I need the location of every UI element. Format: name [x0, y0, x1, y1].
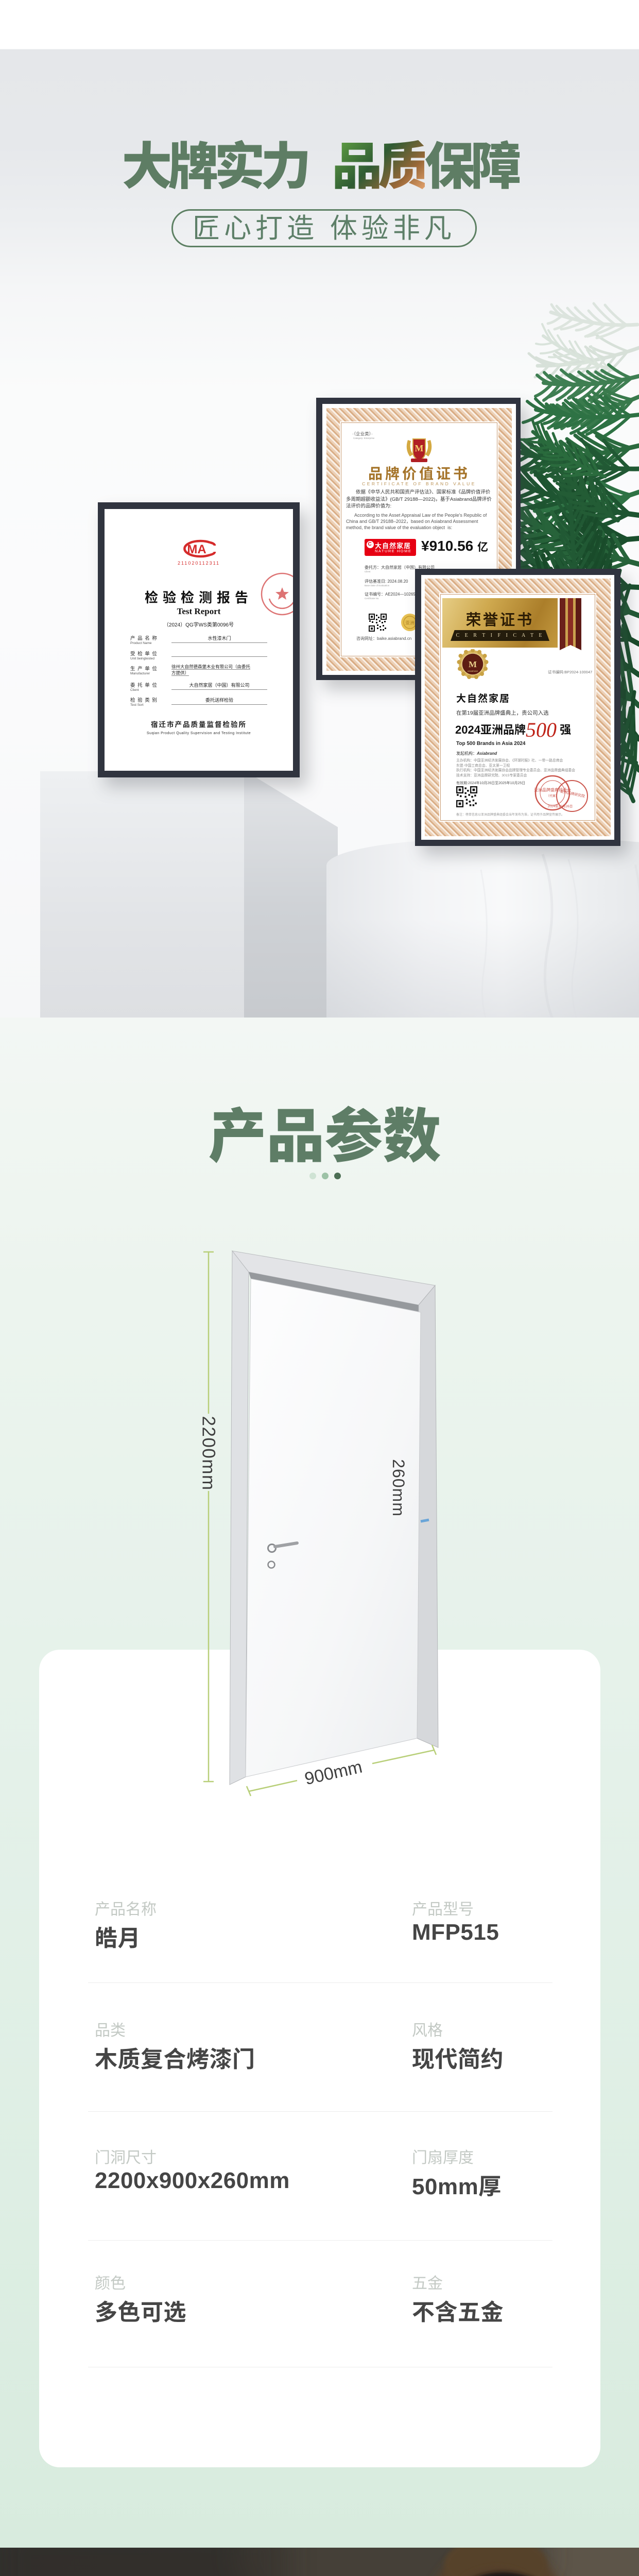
svg-text:MA: MA	[187, 543, 206, 556]
svg-text:亚洲品牌研究院: 亚洲品牌研究院	[560, 789, 585, 799]
svg-text:260mm: 260mm	[389, 1459, 408, 1517]
svg-text:2200mm: 2200mm	[199, 1416, 219, 1490]
svg-text:M: M	[415, 443, 424, 453]
svg-text:ASIABRAND: ASIABRAND	[468, 670, 478, 672]
svg-text:亚洲: 亚洲	[405, 620, 415, 625]
svg-text:M: M	[469, 659, 477, 669]
svg-text:2024年10月26日: 2024年10月26日	[548, 804, 573, 808]
